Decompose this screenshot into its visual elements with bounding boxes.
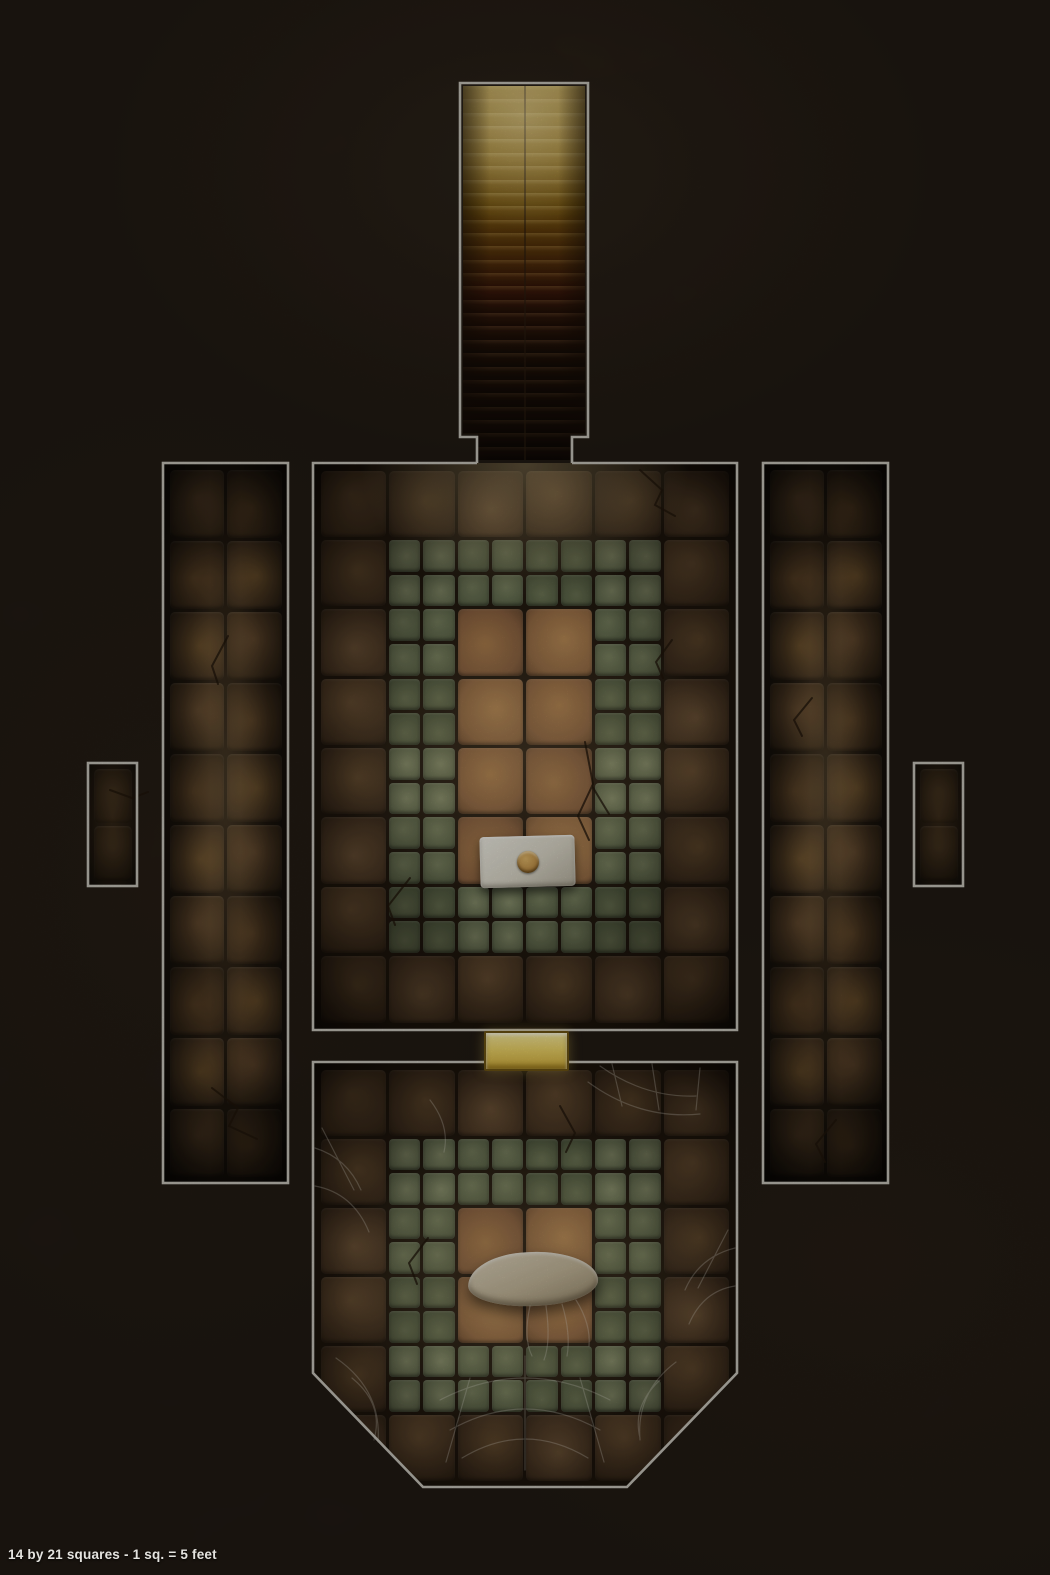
floor-tile xyxy=(664,1346,730,1412)
floor-tile xyxy=(770,754,825,822)
mosaic-subtile xyxy=(595,783,626,815)
mosaic-subtile xyxy=(561,887,592,919)
west-alcove-floor xyxy=(92,767,133,882)
mosaic-subtile xyxy=(389,1242,420,1274)
floor-tile xyxy=(321,1346,387,1412)
west-corridor-floor xyxy=(168,468,283,1178)
floor-tile xyxy=(595,471,661,537)
mosaic-subtile xyxy=(423,748,454,780)
gold-door xyxy=(484,1031,569,1071)
mosaic-subtile xyxy=(389,1208,420,1240)
floor-tile xyxy=(458,471,524,537)
mosaic-subtile xyxy=(526,921,557,953)
mosaic-subtile xyxy=(458,1346,489,1378)
mosaic-subtile xyxy=(423,887,454,919)
floor-tile xyxy=(94,826,132,881)
floor-tile xyxy=(170,967,225,1035)
mosaic-subtile xyxy=(389,1311,420,1343)
floor-tile xyxy=(595,956,661,1022)
floor-tile xyxy=(170,612,225,680)
mosaic-subtile xyxy=(423,644,454,676)
floor-tile xyxy=(321,748,387,814)
floor-tile xyxy=(227,1109,282,1177)
mosaic-subtile xyxy=(629,817,660,849)
floor-tile xyxy=(664,679,730,745)
floor-tile xyxy=(321,1277,387,1343)
mosaic-subtile xyxy=(458,1139,489,1171)
floor-tile xyxy=(595,887,661,953)
mosaic-subtile xyxy=(595,1311,626,1343)
mosaic-subtile xyxy=(389,1173,420,1205)
mosaic-subtile xyxy=(492,575,523,607)
floor-tile xyxy=(770,825,825,893)
floor-tile xyxy=(458,1070,524,1136)
floor-tile xyxy=(389,1277,455,1343)
floor-tile xyxy=(664,1415,730,1481)
mosaic-subtile xyxy=(389,609,420,641)
floor-tile xyxy=(770,896,825,964)
floor-tile xyxy=(664,887,730,953)
floor-tile xyxy=(526,1415,592,1481)
floor-tile xyxy=(458,1346,524,1412)
floor-tile xyxy=(389,956,455,1022)
floor-tile xyxy=(526,887,592,953)
floor-tile xyxy=(595,1208,661,1274)
floor-tile xyxy=(170,754,225,822)
floor-tile xyxy=(827,896,882,964)
floor-tile xyxy=(321,1070,387,1136)
mosaic-subtile xyxy=(595,1139,626,1171)
floor-tile xyxy=(170,1109,225,1177)
mosaic-subtile xyxy=(629,644,660,676)
floor-tile xyxy=(458,679,524,745)
floor-tile xyxy=(920,769,958,824)
mosaic-subtile xyxy=(423,852,454,884)
floor-tile xyxy=(595,748,661,814)
mosaic-subtile xyxy=(423,609,454,641)
mosaic-subtile xyxy=(526,1380,557,1412)
mosaic-subtile xyxy=(492,1346,523,1378)
floor-tile xyxy=(389,1208,455,1274)
floor-tile xyxy=(664,956,730,1022)
mosaic-subtile xyxy=(389,748,420,780)
floor-tile xyxy=(321,1208,387,1274)
floor-tile xyxy=(389,748,455,814)
mosaic-subtile xyxy=(629,1311,660,1343)
floor-tile xyxy=(770,683,825,751)
mosaic-subtile xyxy=(423,679,454,711)
floor-tile xyxy=(664,1139,730,1205)
floor-tile xyxy=(321,540,387,606)
floor-tile xyxy=(526,1070,592,1136)
mosaic-subtile xyxy=(423,1277,454,1309)
mosaic-subtile xyxy=(423,1346,454,1378)
mosaic-subtile xyxy=(595,644,626,676)
mosaic-subtile xyxy=(595,1173,626,1205)
mosaic-subtile xyxy=(458,540,489,572)
mosaic-subtile xyxy=(595,887,626,919)
floor-tile xyxy=(458,609,524,675)
mosaic-subtile xyxy=(595,1208,626,1240)
mosaic-subtile xyxy=(389,1346,420,1378)
mosaic-subtile xyxy=(595,1277,626,1309)
mosaic-subtile xyxy=(389,1139,420,1171)
floor-tile xyxy=(526,471,592,537)
floor-tile xyxy=(458,956,524,1022)
floor-tile xyxy=(827,470,882,538)
floor-tile xyxy=(526,748,592,814)
floor-tile xyxy=(389,1346,455,1412)
floor-tile xyxy=(458,1415,524,1481)
mosaic-subtile xyxy=(629,679,660,711)
floor-tile xyxy=(526,679,592,745)
mosaic-subtile xyxy=(561,540,592,572)
floor-tile xyxy=(526,1139,592,1205)
mosaic-subtile xyxy=(423,1380,454,1412)
floor-tile xyxy=(595,1070,661,1136)
mosaic-subtile xyxy=(595,748,626,780)
mosaic-subtile xyxy=(389,713,420,745)
floor-tile xyxy=(827,683,882,751)
floor-tile xyxy=(526,609,592,675)
mosaic-subtile xyxy=(595,1242,626,1274)
main-chamber-floor xyxy=(319,469,731,1024)
floor-tile xyxy=(227,541,282,609)
floor-tile xyxy=(170,683,225,751)
floor-tile xyxy=(227,967,282,1035)
floor-tile xyxy=(827,754,882,822)
mosaic-subtile xyxy=(423,1311,454,1343)
west-alcove xyxy=(88,763,137,886)
mosaic-subtile xyxy=(423,1242,454,1274)
floor-tile xyxy=(770,1038,825,1106)
mosaic-subtile xyxy=(389,679,420,711)
floor-tile xyxy=(664,1277,730,1343)
mosaic-subtile xyxy=(389,1277,420,1309)
floor-tile xyxy=(664,471,730,537)
mosaic-subtile xyxy=(629,1242,660,1274)
mosaic-subtile xyxy=(629,713,660,745)
floor-tile xyxy=(170,470,225,538)
mosaic-subtile xyxy=(595,540,626,572)
floor-tile xyxy=(595,609,661,675)
floor-tile xyxy=(595,679,661,745)
mosaic-subtile xyxy=(561,921,592,953)
mosaic-subtile xyxy=(458,1380,489,1412)
floor-tile xyxy=(458,748,524,814)
mosaic-subtile xyxy=(492,1173,523,1205)
mosaic-subtile xyxy=(526,540,557,572)
mosaic-subtile xyxy=(595,921,626,953)
mosaic-subtile xyxy=(389,887,420,919)
floor-tile xyxy=(595,1346,661,1412)
floor-tile xyxy=(321,1139,387,1205)
floor-tile xyxy=(389,1415,455,1481)
floor-tile xyxy=(458,540,524,606)
floor-tile xyxy=(389,679,455,745)
floor-tile xyxy=(770,541,825,609)
mosaic-subtile xyxy=(423,1139,454,1171)
mosaic-subtile xyxy=(389,921,420,953)
floor-tile xyxy=(389,540,455,606)
mosaic-subtile xyxy=(458,575,489,607)
floor-tile xyxy=(595,1415,661,1481)
floor-tile xyxy=(664,1070,730,1136)
mosaic-subtile xyxy=(526,575,557,607)
main-chamber xyxy=(313,463,737,1030)
mosaic-subtile xyxy=(423,783,454,815)
floor-tile xyxy=(389,817,455,883)
floor-tile xyxy=(664,748,730,814)
mosaic-subtile xyxy=(526,1139,557,1171)
mosaic-subtile xyxy=(595,852,626,884)
mosaic-subtile xyxy=(595,609,626,641)
floor-tile xyxy=(227,470,282,538)
mosaic-subtile xyxy=(458,921,489,953)
floor-tile xyxy=(827,825,882,893)
mosaic-subtile xyxy=(595,713,626,745)
mosaic-subtile xyxy=(389,783,420,815)
mosaic-subtile xyxy=(595,575,626,607)
floor-tile xyxy=(227,896,282,964)
mosaic-subtile xyxy=(492,921,523,953)
mosaic-subtile xyxy=(629,887,660,919)
floor-tile xyxy=(827,967,882,1035)
floor-tile xyxy=(458,1139,524,1205)
floor-tile xyxy=(389,1139,455,1205)
floor-tile xyxy=(664,540,730,606)
floor-tile xyxy=(389,471,455,537)
mosaic-subtile xyxy=(595,1380,626,1412)
floor-tile xyxy=(389,887,455,953)
floor-tile xyxy=(770,1109,825,1177)
mosaic-subtile xyxy=(629,1173,660,1205)
mosaic-subtile xyxy=(629,1380,660,1412)
east-alcove-floor xyxy=(918,767,959,882)
mosaic-subtile xyxy=(561,1139,592,1171)
mosaic-subtile xyxy=(629,1139,660,1171)
floor-tile xyxy=(664,1208,730,1274)
mosaic-subtile xyxy=(458,887,489,919)
floor-tile xyxy=(595,540,661,606)
floor-tile xyxy=(321,1415,387,1481)
floor-tile xyxy=(595,1139,661,1205)
mosaic-subtile xyxy=(629,575,660,607)
stair-center-seam xyxy=(524,86,526,460)
mosaic-subtile xyxy=(423,713,454,745)
mosaic-subtile xyxy=(389,852,420,884)
floor-tile xyxy=(770,967,825,1035)
mosaic-subtile xyxy=(526,1346,557,1378)
floor-tile xyxy=(770,612,825,680)
mosaic-subtile xyxy=(389,540,420,572)
floor-tile xyxy=(827,1109,882,1177)
floor-tile xyxy=(827,541,882,609)
mosaic-subtile xyxy=(389,1380,420,1412)
mosaic-subtile xyxy=(595,679,626,711)
mosaic-subtile xyxy=(629,609,660,641)
west-corridor xyxy=(163,463,288,1183)
staircase-shaft xyxy=(463,86,585,460)
mosaic-subtile xyxy=(561,1380,592,1412)
mosaic-subtile xyxy=(492,1380,523,1412)
floor-tile xyxy=(595,1277,661,1343)
mosaic-subtile xyxy=(629,1208,660,1240)
floor-tile xyxy=(227,754,282,822)
mosaic-subtile xyxy=(423,817,454,849)
mosaic-subtile xyxy=(561,1346,592,1378)
floor-tile xyxy=(227,683,282,751)
mosaic-subtile xyxy=(595,817,626,849)
floor-tile xyxy=(170,825,225,893)
floor-tile xyxy=(770,470,825,538)
floor-tile xyxy=(170,1038,225,1106)
mosaic-subtile xyxy=(629,540,660,572)
mosaic-subtile xyxy=(629,852,660,884)
dungeon-battle-map: 14 by 21 squares - 1 sq. = 5 feet xyxy=(0,0,1050,1575)
scale-caption: 14 by 21 squares - 1 sq. = 5 feet xyxy=(8,1547,217,1562)
mosaic-subtile xyxy=(389,817,420,849)
floor-tile xyxy=(170,541,225,609)
mosaic-subtile xyxy=(423,575,454,607)
floor-tile xyxy=(827,612,882,680)
floor-tile xyxy=(94,769,132,824)
floor-tile xyxy=(595,817,661,883)
floor-tile xyxy=(321,609,387,675)
east-corridor-floor xyxy=(768,468,883,1178)
floor-tile xyxy=(458,887,524,953)
mosaic-subtile xyxy=(492,1139,523,1171)
floor-tile xyxy=(321,471,387,537)
mosaic-subtile xyxy=(561,575,592,607)
floor-tile xyxy=(321,679,387,745)
floor-tile xyxy=(526,540,592,606)
gold-button-icon xyxy=(516,850,539,873)
mosaic-subtile xyxy=(492,540,523,572)
east-corridor xyxy=(763,463,888,1183)
floor-tile xyxy=(827,1038,882,1106)
floor-tile xyxy=(389,1070,455,1136)
floor-tile xyxy=(526,956,592,1022)
mosaic-subtile xyxy=(561,1173,592,1205)
pressure-plate xyxy=(479,835,575,888)
mosaic-subtile xyxy=(458,1173,489,1205)
mosaic-subtile xyxy=(423,540,454,572)
floor-tile xyxy=(170,896,225,964)
mosaic-subtile xyxy=(423,1208,454,1240)
floor-tile xyxy=(664,609,730,675)
floor-tile xyxy=(321,956,387,1022)
floor-tile xyxy=(227,825,282,893)
floor-tile xyxy=(227,612,282,680)
mosaic-subtile xyxy=(492,887,523,919)
mosaic-subtile xyxy=(629,1277,660,1309)
mosaic-subtile xyxy=(595,1346,626,1378)
floor-tile xyxy=(227,1038,282,1106)
floor-tile xyxy=(389,609,455,675)
floor-tile xyxy=(321,887,387,953)
mosaic-subtile xyxy=(389,575,420,607)
mosaic-subtile xyxy=(629,1346,660,1378)
floor-tile xyxy=(920,826,958,881)
floor-tile xyxy=(526,1346,592,1412)
mosaic-subtile xyxy=(629,783,660,815)
mosaic-subtile xyxy=(629,748,660,780)
mosaic-subtile xyxy=(389,644,420,676)
mosaic-subtile xyxy=(629,921,660,953)
east-alcove xyxy=(914,763,963,886)
mosaic-subtile xyxy=(423,1173,454,1205)
mosaic-subtile xyxy=(526,887,557,919)
mosaic-subtile xyxy=(423,921,454,953)
floor-tile xyxy=(321,817,387,883)
mosaic-subtile xyxy=(526,1173,557,1205)
floor-tile xyxy=(664,817,730,883)
